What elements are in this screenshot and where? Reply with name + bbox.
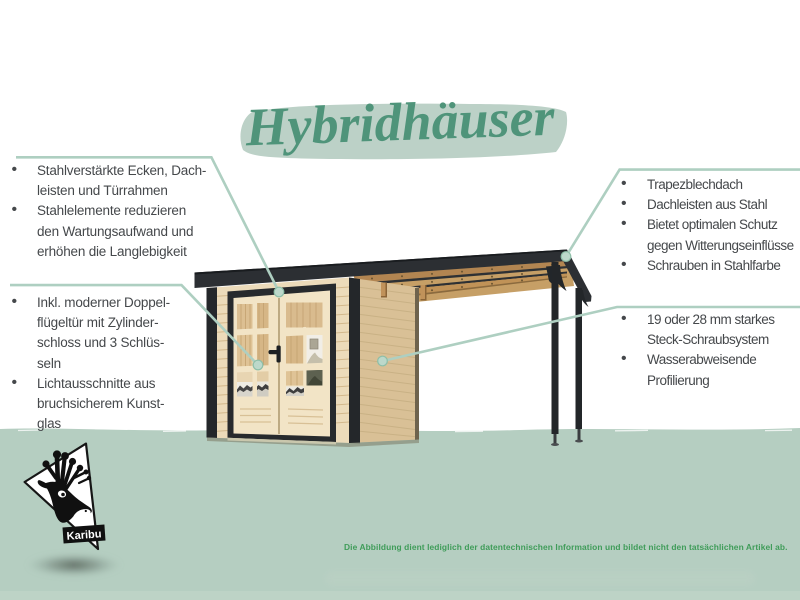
svg-text:Karibu: Karibu — [66, 528, 102, 542]
